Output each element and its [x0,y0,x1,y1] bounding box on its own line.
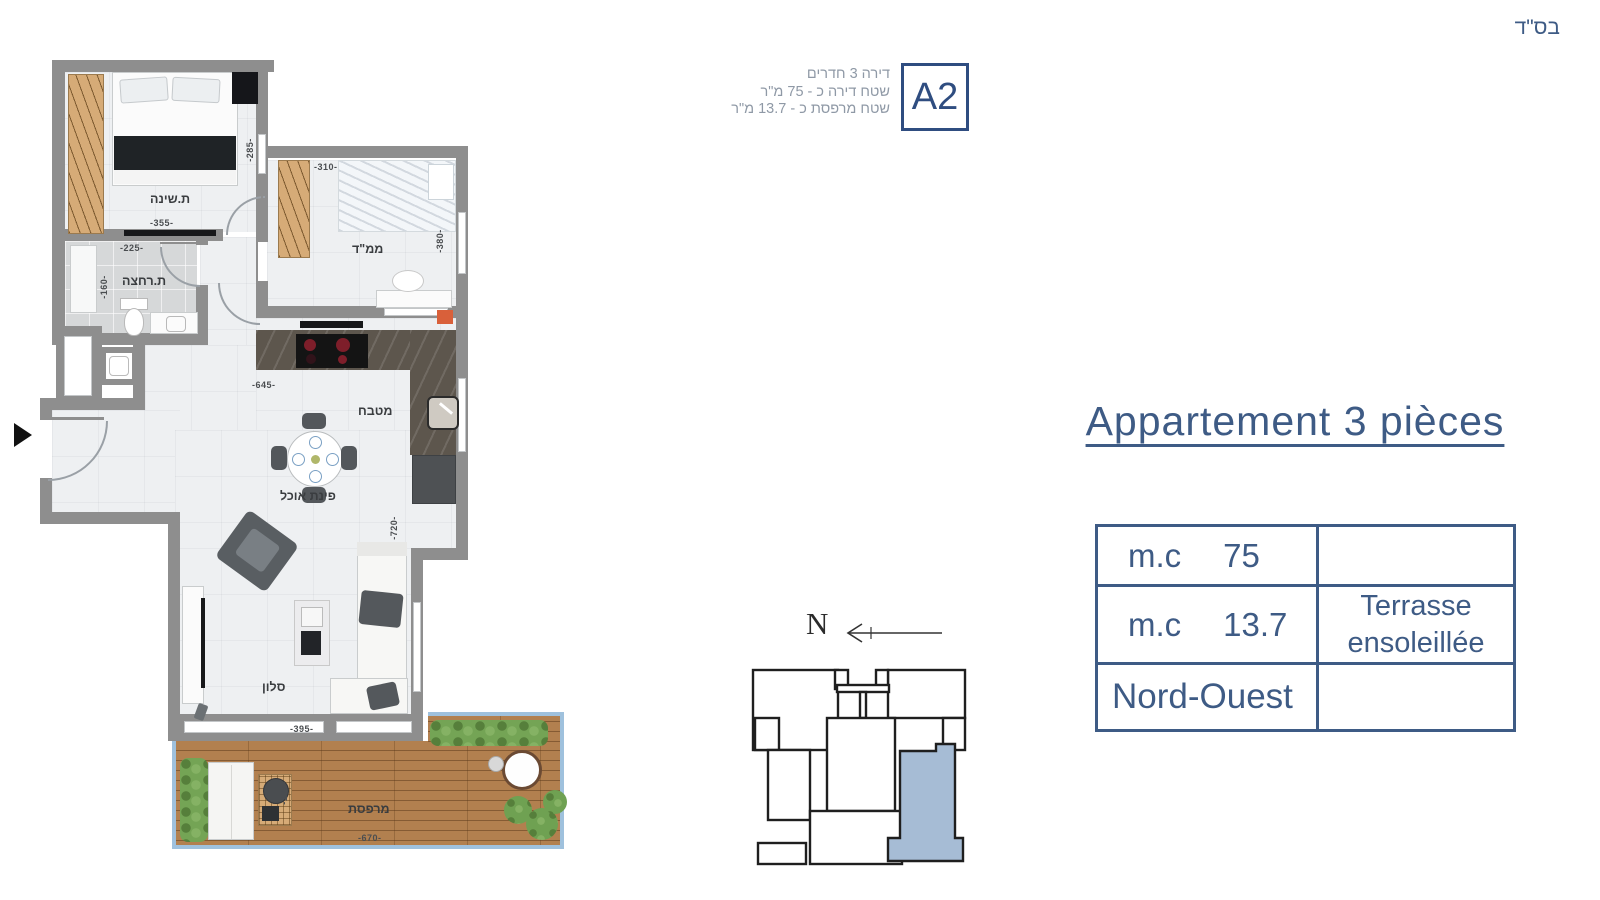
dining-chair [341,446,357,470]
table-cell-orientation: Nord-Ouest [1098,665,1319,729]
bbq-cart [262,806,279,821]
room-label-living: סלון [262,680,285,694]
pillow [428,164,454,200]
compass: N [800,604,950,648]
dim-mamad-height: -380- [435,229,445,253]
entry-door-leaf [46,417,104,420]
wall [262,146,468,158]
dining-chair [271,446,287,470]
window [458,378,466,452]
spec-table: m.c 75 m.c 13.7 Terrasse ensoleillée Nor… [1095,524,1516,732]
sofa-armrest [357,542,407,556]
unit-badge: A2 [901,63,969,131]
orange-bench [437,310,453,324]
info-line-terrace: שטח מרפסת כ - 13.7 מ"ר [640,101,890,119]
terrace-railing [172,845,564,849]
window [258,134,266,174]
dim-bath-width: -225- [120,243,144,253]
window-sill [300,321,363,328]
room-label-dining: פינת אוכל [280,489,336,503]
dim-living-width: -395- [290,724,314,734]
tray-dark [301,631,321,655]
unit-badge-label: A2 [912,76,958,119]
table-cell-terrace-area: m.c 13.7 [1098,587,1319,665]
room-label-kitchen: מטבח [358,404,392,418]
dim-bedroom-height: -285- [245,138,255,162]
dim-terrace-width: -670- [358,833,382,843]
highlighted-unit [888,744,963,861]
tv-screen [201,598,205,688]
fridge [412,455,456,504]
wall [52,60,274,72]
bed-sheet [114,170,236,184]
faucet [439,402,453,415]
building-key-plan [725,645,969,867]
dim-terrace-height: -175- [279,781,289,805]
room-label-bathroom: ת.רחצה [122,274,166,288]
dim-kitchen-width: -645- [252,380,276,390]
sofa-pillow [358,590,403,628]
terrace-unit: m.c [1098,606,1181,644]
centerpiece [311,455,320,464]
room-label-terrace: מרפסת [348,802,390,816]
info-line-area: שטח דירה כ - 75 מ"ר [640,84,890,102]
dim-living-height: -720- [389,516,399,540]
area-value: 75 [1223,537,1260,575]
hedge [430,720,548,746]
armchair-cushion [234,527,280,573]
wall [40,512,180,524]
bedroom-door-leaf [261,196,263,234]
window [458,212,466,274]
bsd-text: בס"ד [1515,16,1560,40]
kitchen-counter [410,330,456,455]
tv-unit [232,72,258,104]
shaft [100,347,138,385]
toilet [124,308,144,336]
room-label-mamad: ממ"ד [352,242,383,256]
plate [326,453,339,466]
page-title: Appartement 3 pièces [1060,398,1530,445]
orientation-value: Nord-Ouest [1098,677,1293,717]
burner [306,354,316,364]
page: ת.שינה ת.רחצה ממ"ד מטבח פינת אוכל סלון מ… [0,0,1600,900]
info-line-rooms: דירה 3 חדרים [640,66,890,84]
desk [376,290,452,308]
plate [309,436,322,449]
window [336,721,412,733]
table-cell-area-label: m.c 75 [1098,527,1319,587]
area-unit: m.c [1098,537,1181,575]
room-label-bedroom: ת.שינה [150,192,190,206]
bathroom-door-leaf [160,242,198,244]
wardrobe [68,74,104,234]
table-cell-empty [1319,527,1513,587]
table-cell-terrace-note: Terrasse ensoleillée [1319,587,1513,665]
table-cell-empty [1319,665,1513,729]
burner [338,355,347,364]
burner [304,339,316,351]
shaft-inner [109,356,129,376]
round-table [502,750,542,790]
apartment-info-block: דירה 3 חדרים שטח דירה כ - 75 מ"ר שטח מרפ… [640,66,890,119]
coffee-table [294,600,330,666]
tray [301,607,323,627]
blanket [114,136,236,170]
dining-chair [302,413,326,429]
dim-mamad-width: -310- [314,162,338,172]
north-arrow-icon [838,620,946,646]
stool [488,756,504,772]
dining-table [287,431,343,487]
mamad-door-leaf [256,241,258,281]
terrace-railing [560,712,564,849]
north-label: N [806,606,828,642]
dim-bedroom-width: -355- [150,218,174,228]
sun-lounger [208,762,254,840]
terrace-railing [428,712,564,716]
dim-bath-height: -160- [99,275,109,299]
window [413,602,421,692]
lounger-divider [231,765,232,839]
wall [52,60,65,345]
shower [70,245,97,313]
entrance-arrow [14,423,32,447]
pillow [119,76,169,103]
stove [296,334,368,368]
plate [292,453,305,466]
terrace-value: 13.7 [1223,606,1287,644]
sink-basin [166,316,186,332]
potted-plant [543,790,567,814]
wall [456,146,468,560]
plate [309,470,322,483]
terrace-railing [172,741,176,849]
kitchen-sink [427,396,459,430]
wall [168,512,180,722]
desk-chair [392,270,424,292]
hedge [180,758,208,842]
pillow [171,77,220,103]
burner [336,338,350,352]
